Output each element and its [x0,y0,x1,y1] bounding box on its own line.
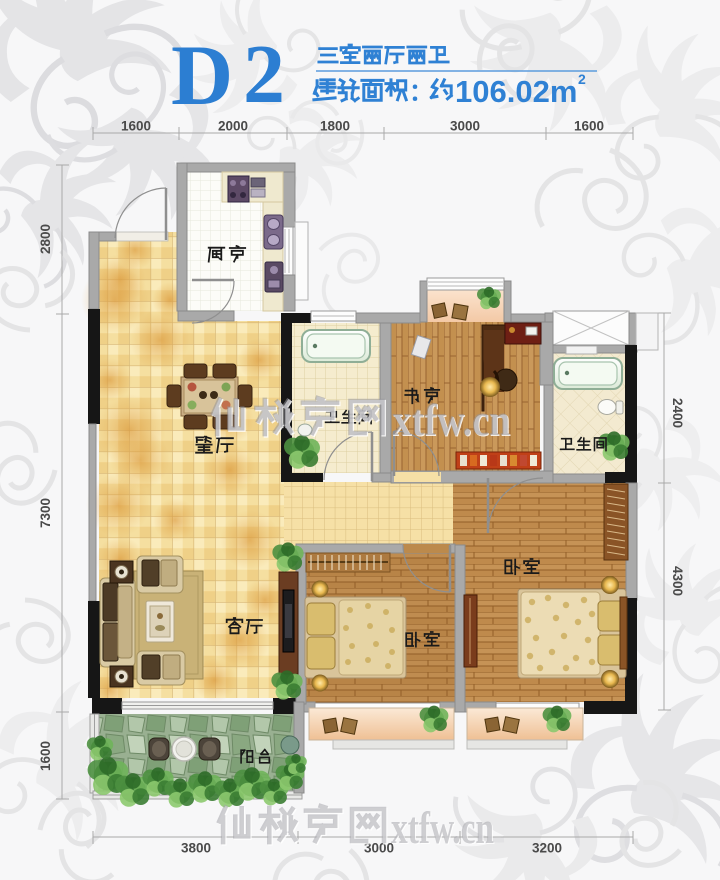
svg-text:3000: 3000 [450,119,480,134]
svg-text:106.02m: 106.02m [455,74,577,109]
svg-text:7300: 7300 [38,498,53,528]
svg-text:2400: 2400 [670,398,685,428]
svg-text:3200: 3200 [532,841,562,856]
svg-text:1800: 1800 [320,119,350,134]
svg-text:4300: 4300 [670,566,685,596]
svg-text:D: D [171,27,233,123]
svg-text:2800: 2800 [38,224,53,254]
svg-text:2: 2 [578,71,586,87]
svg-text:3800: 3800 [181,841,211,856]
svg-text:1600: 1600 [121,119,151,134]
svg-text:xtfw.cn: xtfw.cn [391,802,494,853]
svg-text:2000: 2000 [218,119,248,134]
svg-text:：: ： [409,79,433,106]
svg-text:1600: 1600 [574,119,604,134]
svg-text:xtfw.cn: xtfw.cn [392,394,510,445]
svg-text:1600: 1600 [38,741,53,771]
svg-text:2: 2 [243,28,285,121]
